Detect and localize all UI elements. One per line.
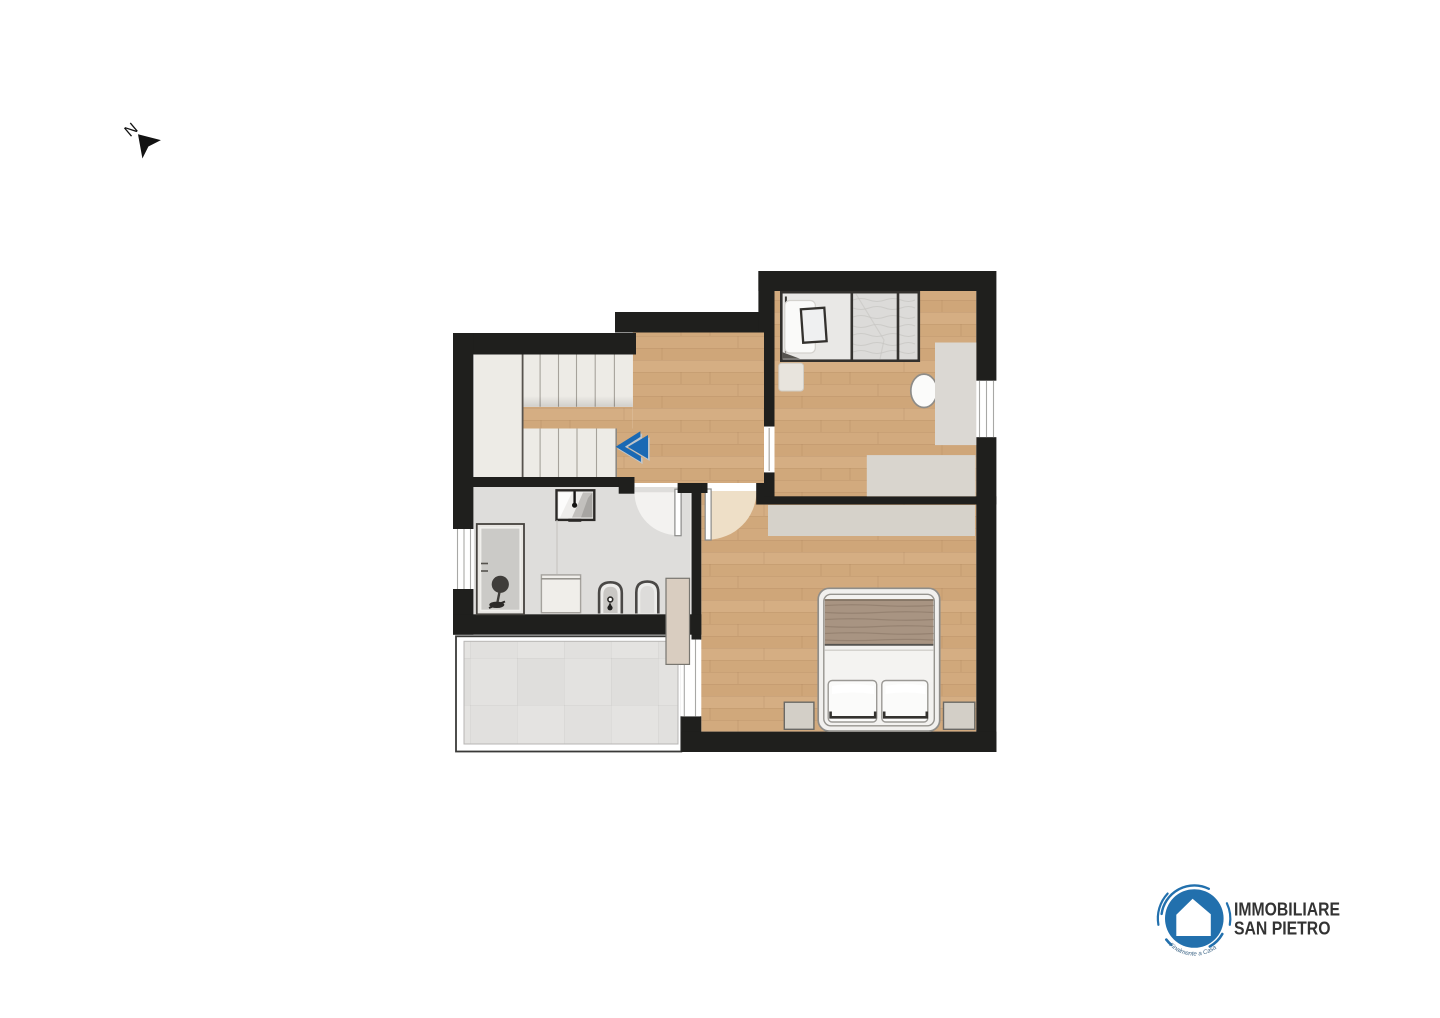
svg-text:N: N (122, 120, 142, 140)
svg-text:IMMOBILIARE: IMMOBILIARE (1234, 899, 1340, 920)
svg-text:SAN PIETRO: SAN PIETRO (1234, 918, 1331, 939)
